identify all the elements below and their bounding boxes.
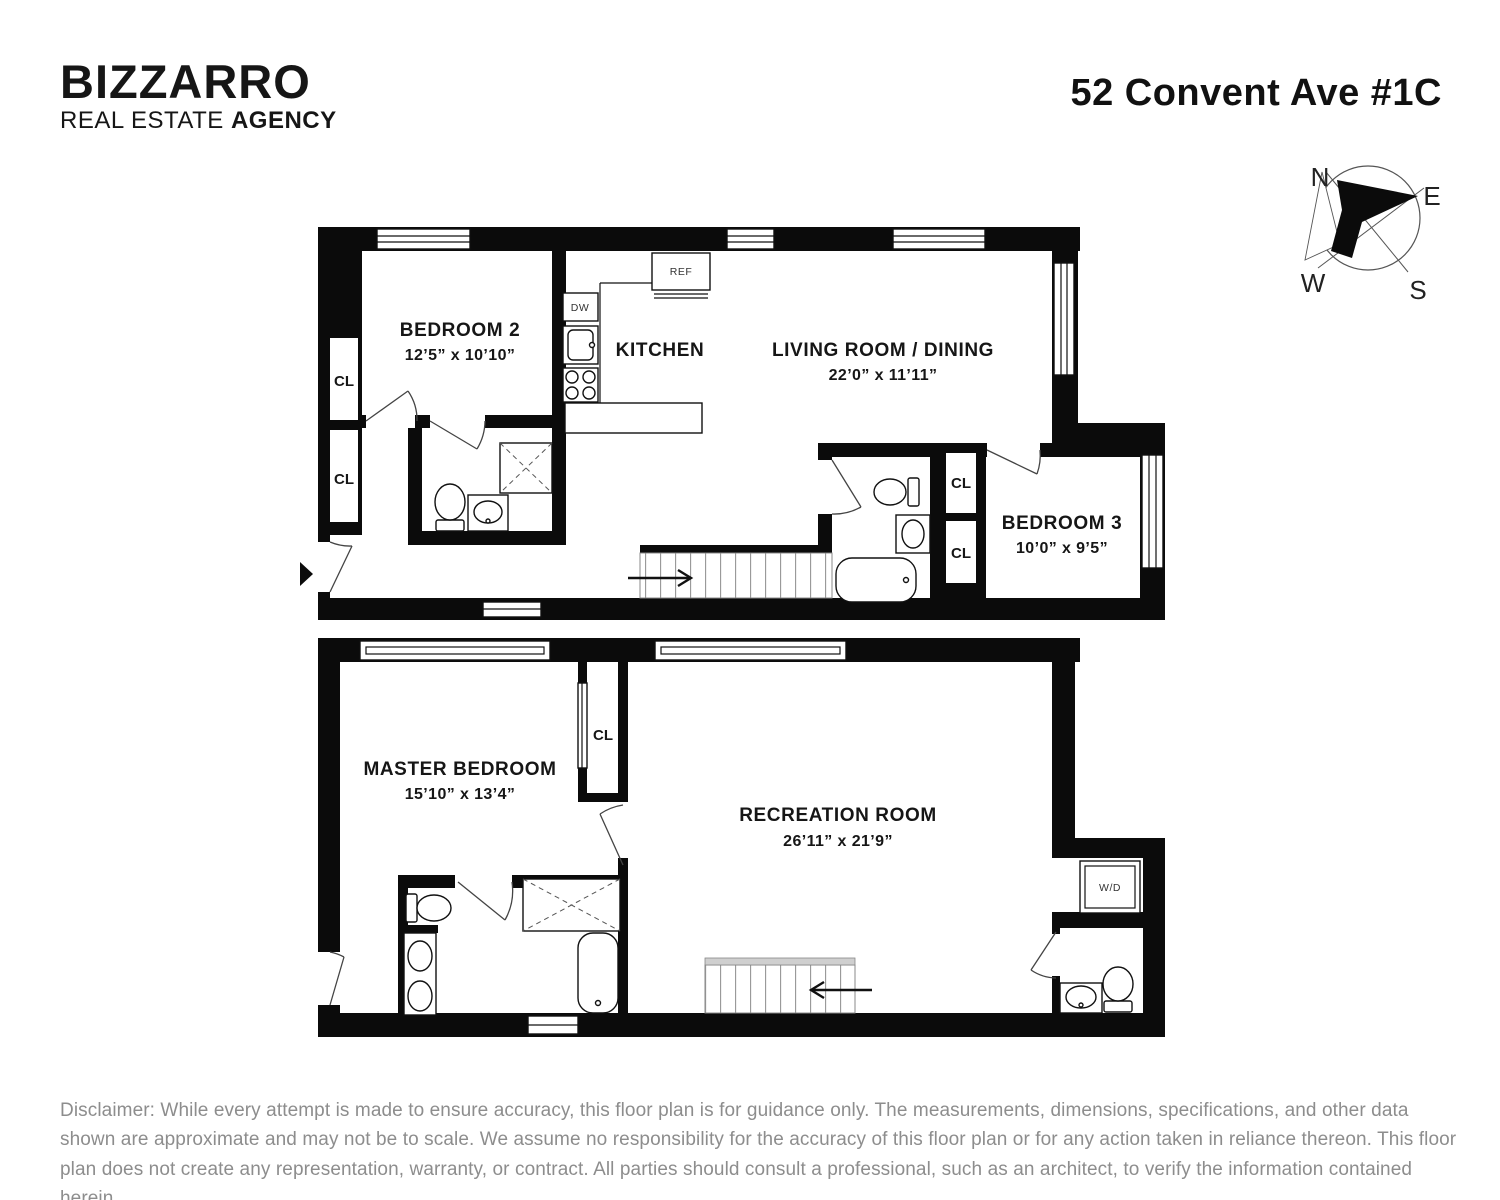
window-icon	[377, 229, 470, 249]
compass-w: W	[1301, 268, 1326, 298]
window-icon	[1142, 455, 1163, 568]
window-icon	[483, 602, 541, 617]
toilet-icon	[406, 894, 451, 922]
bathroom1-fixtures	[435, 443, 552, 531]
disclaimer-text: Disclaimer: While every attempt is made …	[60, 1096, 1458, 1200]
room-label-living: LIVING ROOM / DINING	[772, 340, 994, 361]
room-label-kitchen: KITCHEN	[616, 340, 705, 361]
toilet-icon	[1103, 967, 1133, 1012]
stove-icon	[563, 368, 598, 402]
stairs-up	[628, 553, 832, 598]
closet-label: CL	[951, 545, 971, 562]
window-icon	[1054, 263, 1074, 375]
washer-dryer-label: W/D	[1099, 882, 1121, 894]
window-icon	[727, 229, 774, 249]
floor-plan-drawing: N E W S	[0, 0, 1500, 1200]
sliding-door-icon	[578, 683, 587, 768]
closet-label: CL	[334, 373, 354, 390]
floor-plan-upper: BEDROOM 2 12’5” x 10’10” KITCHEN LIVING …	[300, 227, 1165, 620]
compass-e: E	[1423, 181, 1440, 211]
toilet-icon	[435, 484, 465, 531]
entry-arrow-icon	[300, 562, 313, 586]
room-dims-living: 22’0” x 11’11”	[829, 367, 938, 384]
floorplan-page: BIZZARRO REAL ESTATE AGENCY 52 Convent A…	[0, 0, 1500, 1200]
bathtub-icon	[578, 933, 618, 1013]
stair-stringer	[640, 545, 832, 553]
room-dims-bedroom3: 10’0” x 9’5”	[1016, 540, 1108, 557]
sink-icon	[1060, 983, 1102, 1013]
room-label-rec: RECREATION ROOM	[739, 805, 937, 826]
compass-needle-icon	[1331, 180, 1418, 258]
window-icon	[655, 641, 846, 660]
shower-icon	[523, 879, 620, 931]
compass-n: N	[1311, 162, 1330, 192]
room-dims-rec: 26’11” x 21’9”	[783, 833, 893, 850]
bathtub-icon	[836, 558, 916, 602]
floor-plan-lower: MASTER BEDROOM 15’10” x 13’4” RECREATION…	[318, 638, 1165, 1037]
closet-label: CL	[334, 471, 354, 488]
window-icon	[360, 641, 550, 660]
room-dims-master: 15’10” x 13’4”	[405, 786, 516, 803]
stairs-down	[705, 958, 872, 1013]
refrigerator-label: REF	[670, 266, 693, 278]
double-sink-icon	[404, 933, 436, 1015]
kitchen-sink-icon	[563, 326, 598, 364]
room-label-master: MASTER BEDROOM	[363, 759, 556, 780]
window-icon	[893, 229, 985, 249]
bathroom3-fixtures	[1060, 967, 1133, 1013]
shower-icon	[500, 443, 552, 493]
room-label-bedroom3: BEDROOM 3	[1002, 513, 1122, 534]
window-icon	[528, 1016, 578, 1034]
bathroom2-fixtures	[836, 478, 930, 602]
room-dims-bedroom2: 12’5” x 10’10”	[405, 347, 516, 364]
compass-rose: N E W S	[1301, 162, 1441, 305]
dishwasher-label: DW	[571, 302, 590, 314]
toilet-icon	[874, 478, 919, 506]
compass-s: S	[1409, 275, 1426, 305]
sink-icon	[896, 515, 930, 553]
sink-icon	[468, 495, 508, 531]
closet-label: CL	[593, 727, 613, 744]
kitchen-counter	[565, 403, 702, 433]
room-label-bedroom2: BEDROOM 2	[400, 320, 520, 341]
closet-label: CL	[951, 475, 971, 492]
